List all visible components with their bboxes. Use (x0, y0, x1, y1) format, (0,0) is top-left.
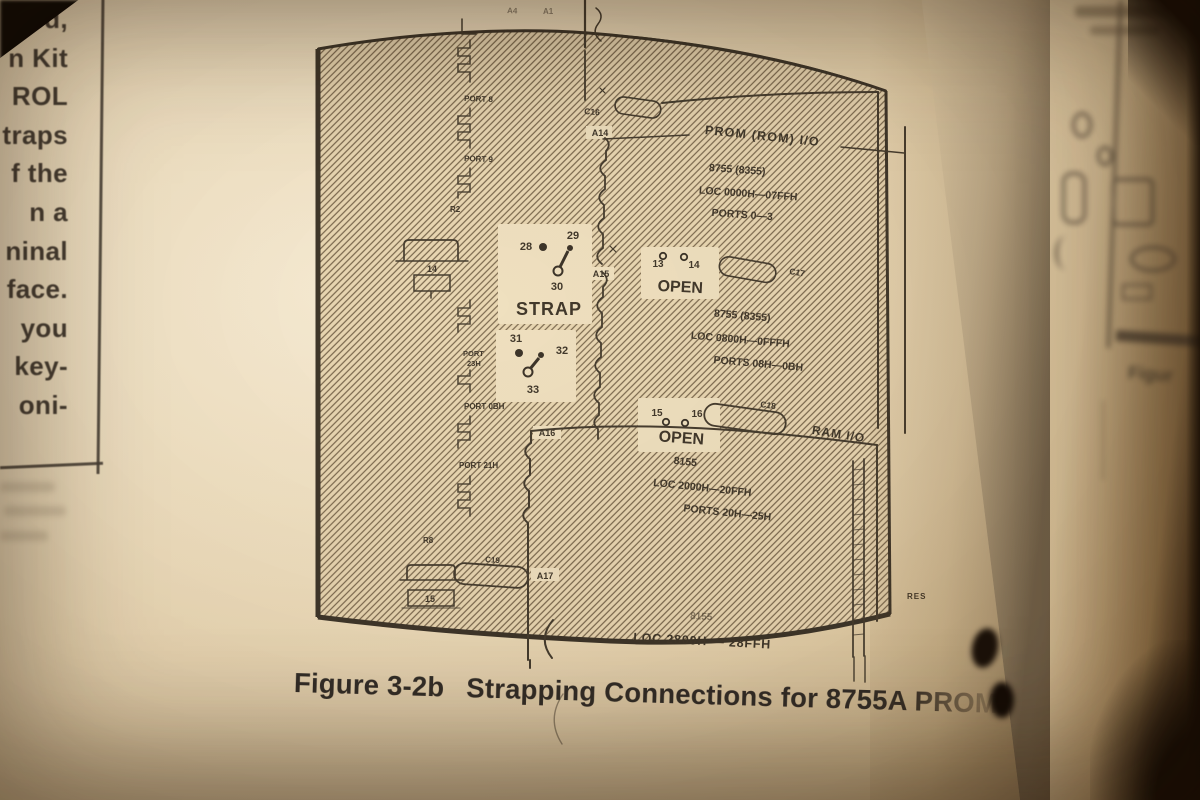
r2-label: R2 (450, 205, 461, 214)
facing-component-shape (1122, 284, 1152, 300)
port-0bh-label: PORT 0BH (464, 402, 505, 411)
jumper-point-13: 13 (652, 259, 664, 270)
facing-component-shape (1130, 246, 1176, 272)
c16-label: C16 (584, 106, 601, 117)
photo-of-manual-page: Figur ved, n Kit ROL traps f the n a nin… (0, 0, 1200, 800)
figure-number: Figure 3-2b (294, 667, 445, 702)
port-mid-label-2: 23H (467, 359, 481, 368)
a15-ref-label: A15 (593, 269, 610, 279)
strap-point-33: 33 (527, 384, 539, 396)
facing-component-shape (1062, 172, 1086, 224)
facing-figure-line (1102, 400, 1104, 480)
facing-component-shape (1097, 146, 1113, 166)
jumper-point-15: 15 (651, 408, 663, 419)
facing-figure-border (1107, 0, 1122, 348)
a16-chip-label: 8155 (673, 455, 698, 469)
strap-point-30: 30 (551, 281, 563, 293)
comp14-label: 14 (427, 264, 437, 274)
ref-a4-label: A4 (507, 6, 518, 16)
jumper-point-14: 14 (688, 260, 700, 271)
port-9-label: PORT 9 (464, 154, 494, 164)
port-8-label: PORT 8 (464, 94, 494, 104)
port-mid-label-1: PORT (463, 349, 484, 358)
open-label-1: OPEN (657, 278, 703, 297)
hatched-board-area (318, 31, 890, 642)
r8-label: R8 (423, 536, 434, 545)
a17-chip-label: 8155 (690, 611, 713, 623)
photo-dark-corner (1090, 640, 1200, 800)
strap-point-31: 31 (510, 333, 522, 345)
facing-component-shape (1112, 178, 1154, 226)
ref-a1-label: A1 (543, 7, 554, 16)
open-label-2: OPEN (658, 428, 704, 448)
binding-shadow-spot (990, 682, 1014, 718)
photo-edge-shadow (1186, 0, 1200, 800)
jumper-point-16: 16 (691, 409, 703, 420)
a16-ref-label: A16 (539, 428, 556, 438)
a17-ref-label: A17 (537, 571, 554, 581)
comp15-label: 15 (425, 594, 435, 604)
facing-component-shape (1055, 236, 1077, 270)
c19-label: C19 (485, 555, 501, 565)
facing-component-shape (1072, 112, 1092, 138)
a14-ref-label: A14 (592, 128, 609, 138)
strap-point-29: 29 (567, 230, 579, 242)
strap-label: STRAP (516, 299, 582, 319)
facing-page-caption: Figur (1127, 362, 1173, 386)
port-21h-label: PORT 21H (459, 461, 498, 470)
strap-point-32: 32 (556, 345, 568, 357)
strap-point-28: 28 (520, 241, 532, 253)
